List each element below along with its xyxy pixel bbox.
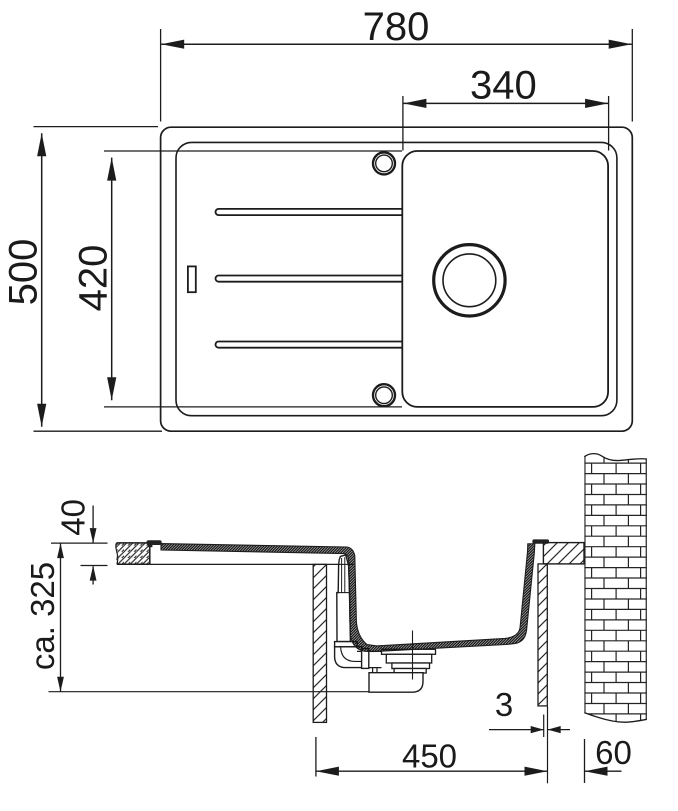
- svg-text:450: 450: [402, 737, 457, 774]
- svg-text:340: 340: [470, 64, 537, 108]
- svg-text:3: 3: [495, 686, 513, 723]
- svg-text:420: 420: [72, 245, 116, 312]
- svg-text:780: 780: [363, 5, 430, 49]
- svg-text:40: 40: [55, 499, 92, 536]
- svg-text:500: 500: [2, 239, 46, 306]
- svg-text:60: 60: [595, 734, 632, 771]
- svg-text:ca. 325: ca. 325: [24, 562, 61, 670]
